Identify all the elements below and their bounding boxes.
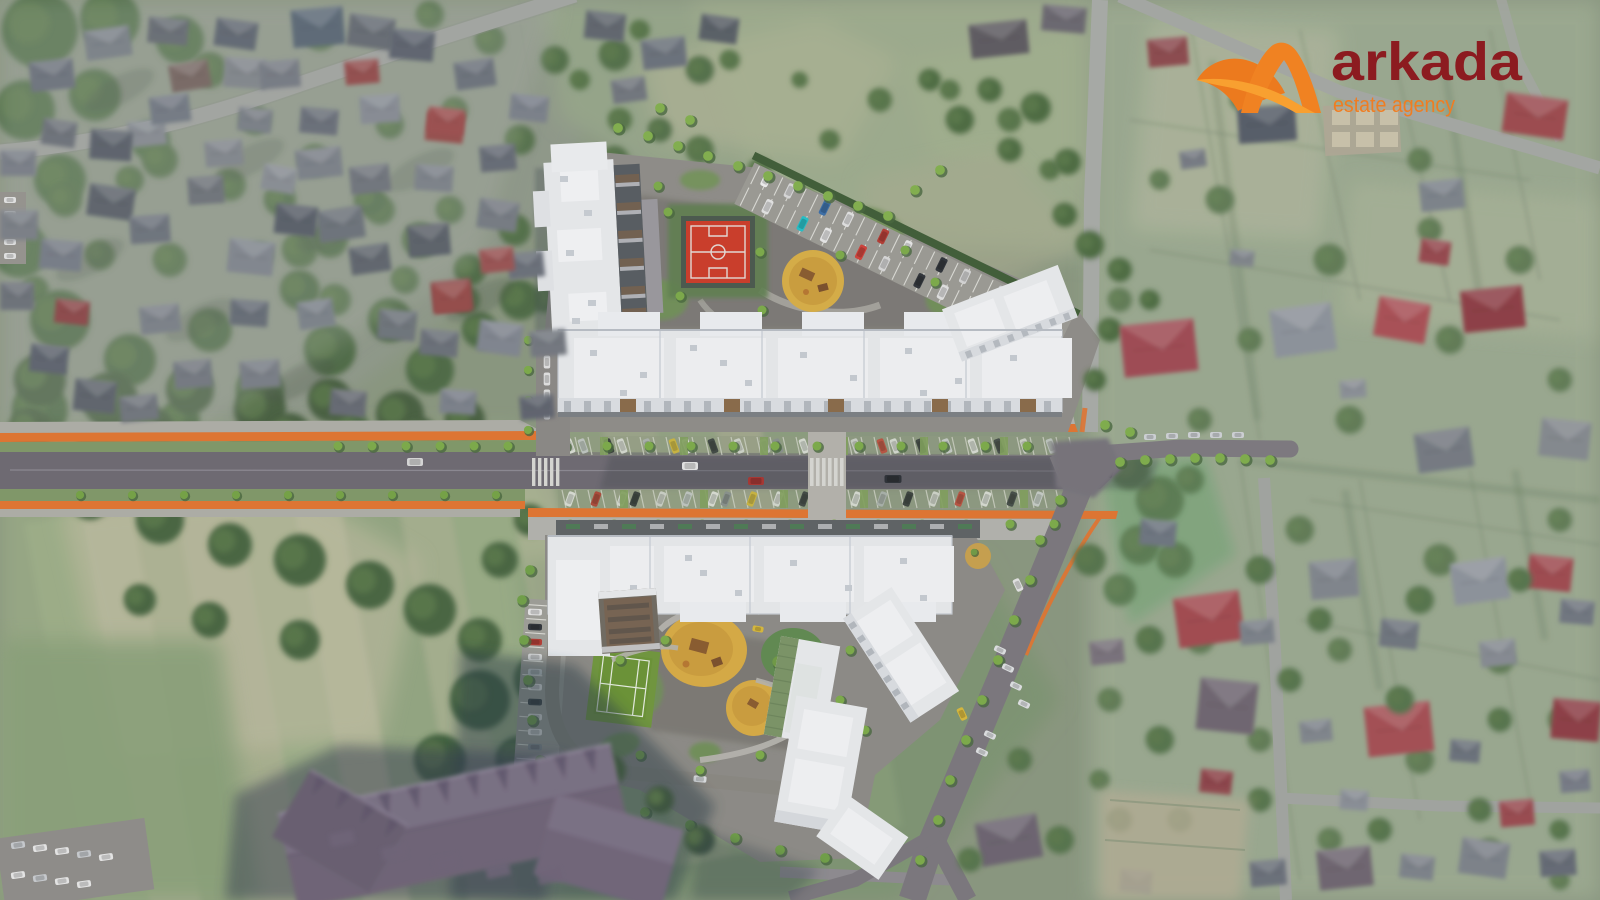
svg-text:arkada: arkada [1331, 32, 1523, 92]
svg-text:estate agency: estate agency [1333, 92, 1455, 117]
